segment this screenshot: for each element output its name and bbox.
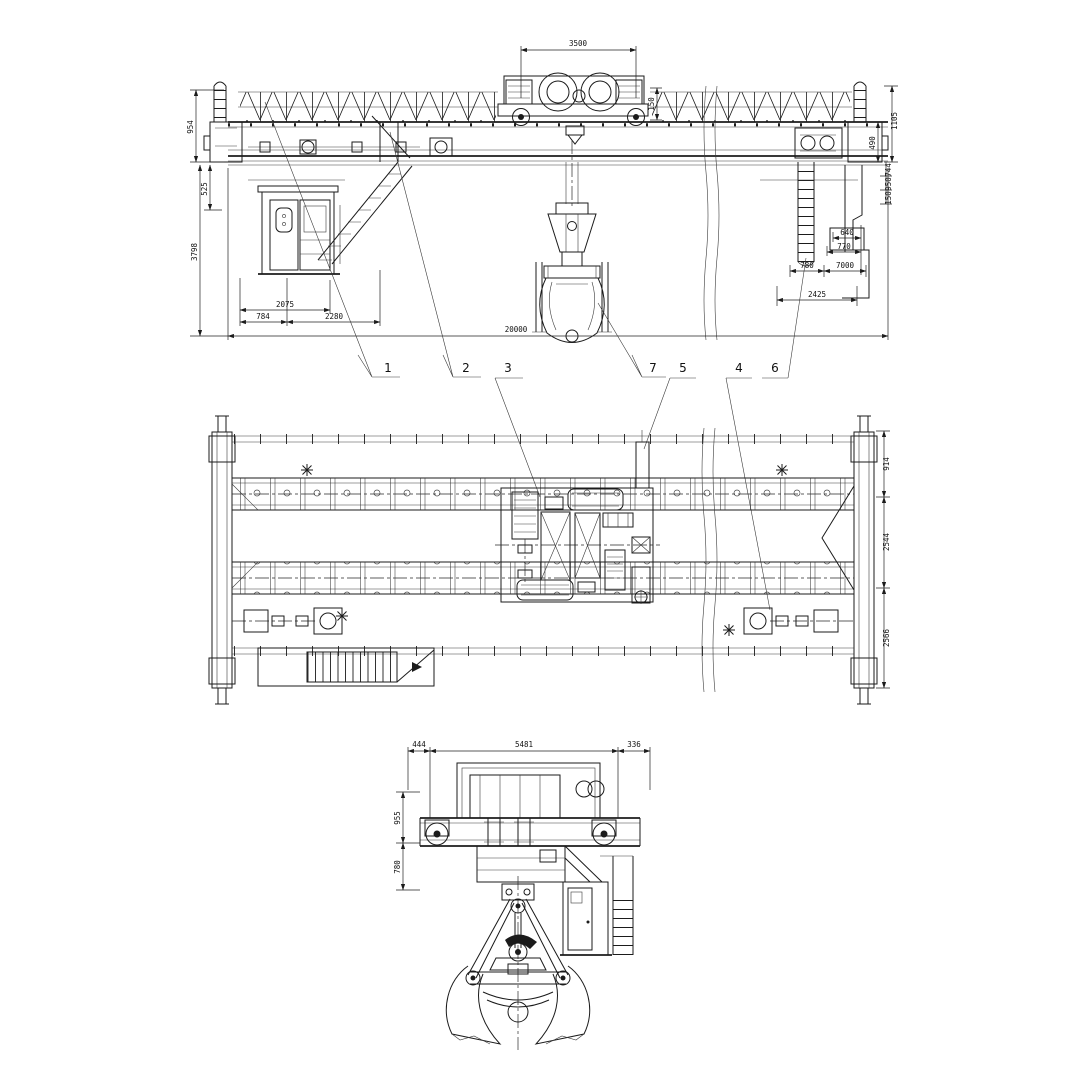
dim-text-3500: 3500 (569, 39, 588, 48)
plan-bottom-girder (232, 562, 854, 594)
dim-text-20000: 20000 (505, 325, 528, 334)
side-left-dims: 955 780 (393, 792, 420, 890)
dim-text-770: 770 (837, 242, 851, 251)
plan-right-carriage (851, 416, 877, 704)
front-trolley (498, 73, 648, 144)
front-right-ladder (798, 162, 814, 266)
dim-text-640: 640 (840, 228, 854, 237)
callout-4: 4 (735, 361, 743, 375)
dim-text-2280: 2280 (325, 312, 344, 321)
dim-text-2075: 2075 (276, 300, 294, 309)
front-elevation-view: 3500 150 (186, 39, 899, 343)
dim-text-7000: 7000 (836, 261, 855, 270)
dim-text-914: 914 (882, 457, 891, 471)
dim-text-950: 950 (884, 177, 893, 191)
dim-text-490: 490 (868, 136, 877, 150)
plan-right-dims: 914 2544 2566 (876, 431, 891, 688)
front-drive-shaft (248, 138, 452, 156)
dim-text-954: 954 (186, 120, 195, 134)
dim-text-2566: 2566 (882, 628, 891, 647)
side-ladder (600, 856, 633, 955)
callout-6: 6 (771, 361, 779, 375)
front-grab-assembly (532, 140, 612, 343)
plan-left-carriage (209, 416, 235, 704)
front-railing (238, 92, 852, 122)
dim-text-784: 784 (256, 312, 270, 321)
dim-text-780: 780 (800, 261, 814, 270)
plan-right-drive (744, 608, 854, 634)
dim-text-444: 444 (412, 740, 426, 749)
plan-left-drive (232, 608, 342, 634)
dim-text-955: 955 (393, 811, 402, 825)
dim-text-525: 525 (200, 182, 209, 196)
side-view: 444 5481 336 (393, 740, 650, 1050)
side-top-dims: 444 5481 336 (408, 740, 650, 818)
plan-view: 914 2544 2566 (209, 416, 891, 704)
dim-text-2544: 2544 (882, 532, 891, 551)
crane-drawing-svg: 3500 150 (0, 0, 1080, 1080)
side-girder-band (420, 818, 640, 846)
side-top-frame (457, 763, 604, 818)
dim-text-336: 336 (627, 740, 641, 749)
drawing-sheet: 3500 150 (0, 0, 1080, 1080)
callout-7: 7 (649, 361, 657, 375)
callout-2: 2 (462, 361, 470, 375)
dim-text-744: 744 (884, 163, 893, 177)
callout-1: 1 (384, 361, 392, 375)
dim-text-5481: 5481 (515, 740, 533, 749)
front-cab-dims: 2075 784 2280 (240, 270, 380, 326)
front-bridge-girder (228, 122, 888, 165)
side-trolley-base (477, 846, 602, 882)
dim-text-1105: 1105 (890, 112, 899, 130)
dim-text-150-trolley: 150 (647, 97, 656, 111)
callout-3: 3 (504, 361, 512, 375)
dim-text-2425: 2425 (808, 290, 826, 299)
front-cab (258, 186, 340, 274)
front-left-dims: 954 525 3798 (186, 90, 228, 336)
dim-text-150r: 150 (884, 191, 893, 205)
callout-5: 5 (679, 361, 687, 375)
dim-text-3798: 3798 (190, 242, 199, 261)
front-stairway (318, 116, 412, 264)
callouts: 1 2 3 7 5 4 6 (265, 102, 806, 610)
side-cab (560, 882, 612, 955)
front-break-lines (704, 86, 719, 340)
plan-top-girder (232, 478, 854, 510)
dim-text-780s: 780 (393, 860, 402, 874)
